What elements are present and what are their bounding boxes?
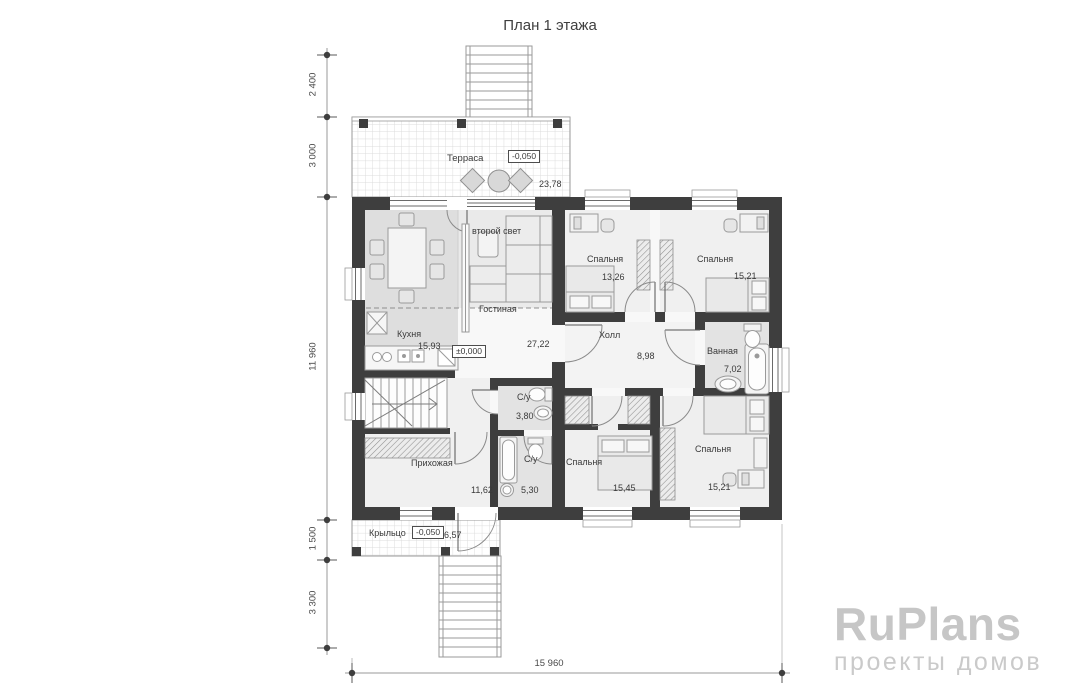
logo-tagline: проекты домов (834, 648, 1074, 676)
dim-left-0: 2 400 (308, 57, 319, 113)
window-bedroom-top-right (692, 190, 737, 210)
room-area-hall: 8,98 (637, 351, 655, 362)
terrace-elevation: -0,050 (508, 150, 540, 163)
window-bathroom-right (769, 348, 789, 392)
room-label-kitchen: Кухня (397, 329, 421, 340)
second-light-railing (462, 224, 469, 332)
front-door-opening (455, 507, 498, 520)
terrace-label: Терраса (447, 153, 483, 164)
room-area-bedroom-bottom-middle: 15,45 (613, 483, 636, 494)
room-label-bedroom-bottom-middle: Спальня (566, 457, 602, 468)
terrace-steps (466, 46, 532, 117)
window-living-terrace (467, 197, 535, 210)
room-area-bedroom-bottom-right: 15,21 (708, 482, 731, 493)
room-label-wc-large: С/у (524, 454, 538, 465)
terrace-area: 23,78 (539, 179, 562, 190)
second-light-label: второй свет (472, 226, 521, 237)
living-elevation: ±0,000 (452, 345, 486, 358)
room-label-bedroom-bottom-right: Спальня (695, 444, 731, 455)
window-kitchen-left (345, 268, 365, 300)
porch-label: Крыльцо (369, 528, 406, 539)
room-label-entry-hall: Прихожая (411, 458, 453, 469)
room-label-wc-small: С/у (517, 392, 531, 403)
dim-left-4: 3 300 (308, 575, 319, 631)
logo-name: RuPlans (834, 600, 1074, 648)
dim-bottom: 15 960 (509, 658, 589, 669)
room-label-bathroom: Ванная (707, 346, 738, 357)
staircase (365, 378, 447, 428)
window-kitchen-top (390, 197, 447, 210)
floor-plan-page: План 1 этажа Терраса -0,050 23,78 Крыльц… (0, 0, 1084, 700)
room-area-bedroom-top-right: 15,21 (734, 271, 757, 282)
window-entry-hall (400, 507, 432, 520)
logo: RuPlans проекты домов (834, 600, 1074, 676)
room-area-wc-large: 5,30 (521, 485, 539, 496)
bedroom-bottom-middle-furniture (598, 436, 652, 490)
terrace-furniture (460, 168, 532, 192)
room-area-wc-small: 3,80 (516, 411, 534, 422)
dim-left-1: 3 000 (308, 128, 319, 184)
room-area-entry-hall: 11,62 (471, 485, 493, 496)
room-label-living: Гостиная (479, 304, 517, 315)
dim-left-2: 11 960 (308, 329, 319, 385)
porch-steps (439, 556, 501, 657)
room-area-kitchen: 15,93 (418, 341, 441, 352)
window-bedroom-bottom-middle (583, 507, 632, 527)
floor-plan-drawing (0, 0, 1084, 700)
room-area-living: 27,22 (527, 339, 550, 350)
terrace-door-opening (447, 197, 467, 210)
window-bedroom-bottom-right (690, 507, 740, 527)
room-label-bedroom-top-left: Спальня (587, 254, 623, 265)
building (345, 190, 789, 551)
porch-elevation: -0,050 (412, 526, 444, 539)
room-label-bedroom-top-right: Спальня (697, 254, 733, 265)
window-stair-left (345, 393, 365, 420)
dim-left-3: 1 500 (308, 511, 319, 567)
window-bedroom-top-left (585, 190, 630, 210)
page-title: План 1 этажа (440, 17, 660, 34)
room-label-hall: Холл (599, 330, 620, 341)
room-area-bathroom: 7,02 (724, 364, 742, 375)
room-area-bedroom-top-left: 13,26 (602, 272, 625, 283)
porch-area: 6,57 (444, 530, 462, 541)
